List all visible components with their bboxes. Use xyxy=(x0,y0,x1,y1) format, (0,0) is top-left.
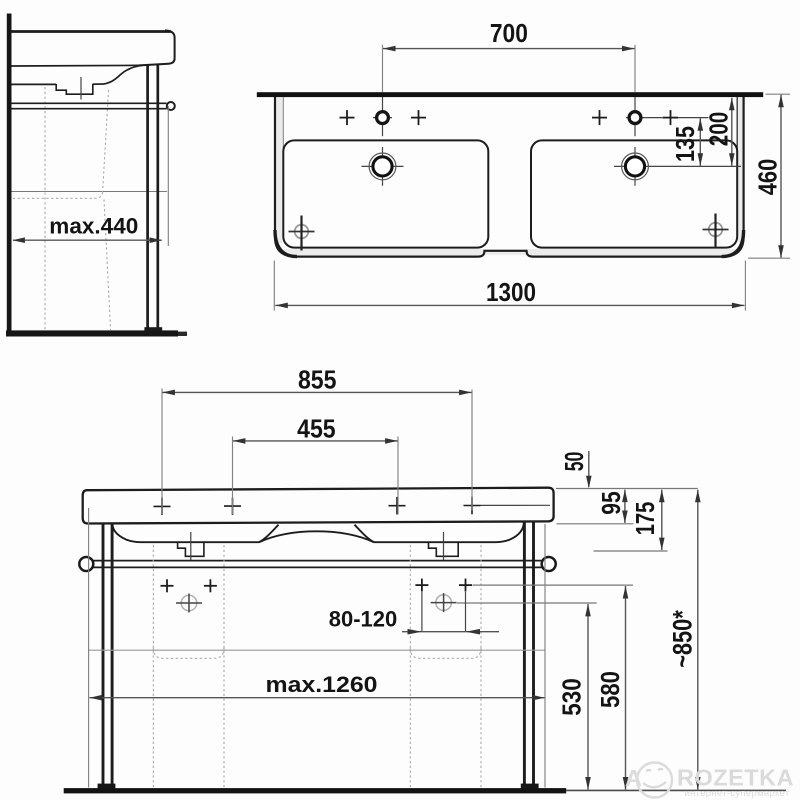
svg-text:200: 200 xyxy=(706,112,734,147)
svg-text:~850*: ~850* xyxy=(668,610,698,668)
svg-text:интернет-супермаркет: интернет-супермаркет xyxy=(685,788,790,799)
svg-text:455: 455 xyxy=(297,415,336,443)
svg-text:530: 530 xyxy=(559,678,587,716)
svg-text:max.440: max.440 xyxy=(49,214,138,239)
svg-text:95: 95 xyxy=(598,491,626,514)
svg-text:460: 460 xyxy=(755,159,783,196)
svg-text:ROZETKA: ROZETKA xyxy=(677,765,794,791)
svg-text:855: 855 xyxy=(298,367,337,395)
svg-text:1300: 1300 xyxy=(486,279,536,307)
svg-text:50: 50 xyxy=(561,452,589,472)
svg-text:700: 700 xyxy=(490,20,528,48)
svg-text:80-120: 80-120 xyxy=(329,606,398,631)
svg-text:A: A xyxy=(625,765,642,791)
svg-text:135: 135 xyxy=(672,126,700,162)
svg-text:max.1260: max.1260 xyxy=(266,672,378,697)
svg-text:580: 580 xyxy=(597,671,625,708)
svg-text:175: 175 xyxy=(632,502,660,536)
